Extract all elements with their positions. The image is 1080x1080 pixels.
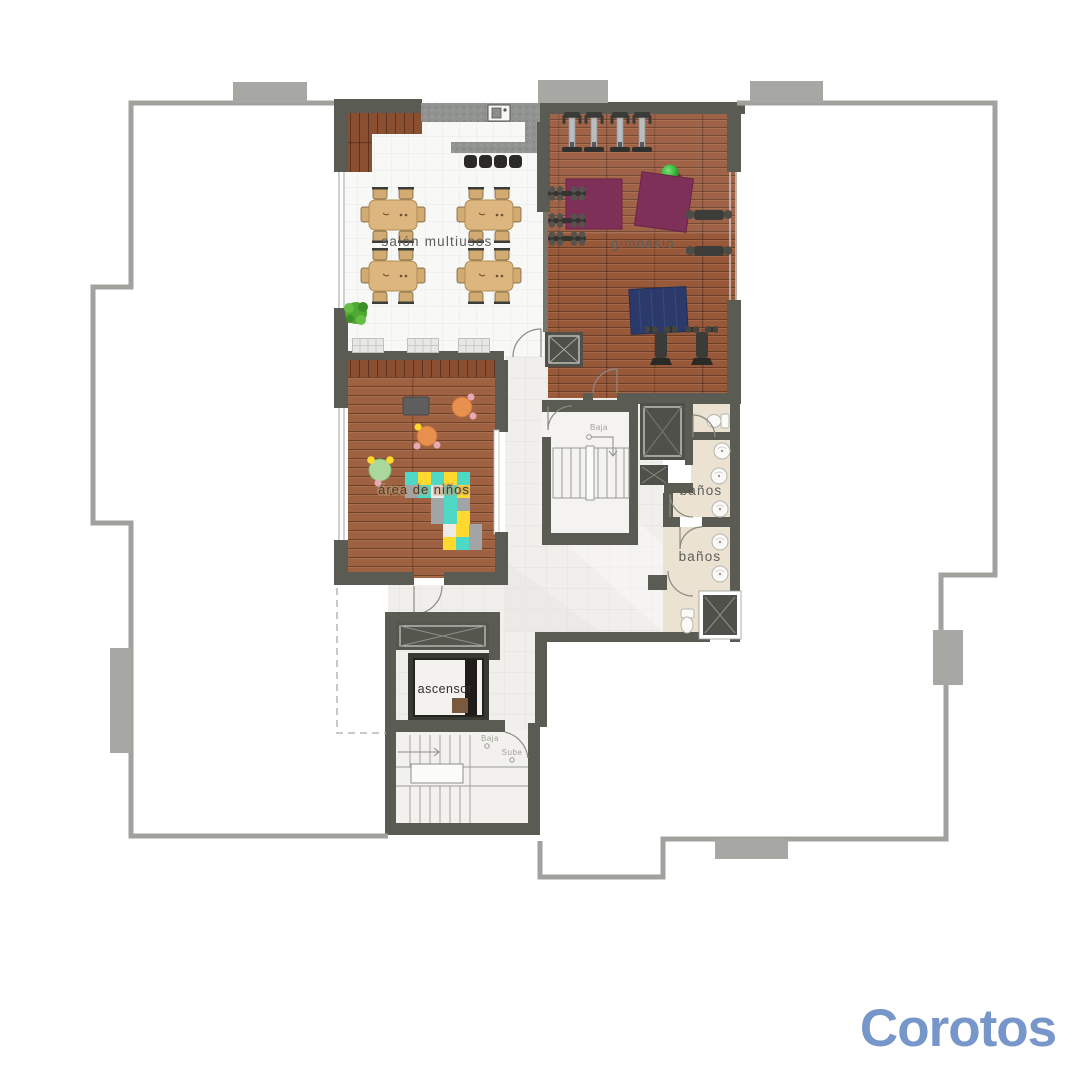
bottom-stair-baja-label: Baja <box>481 734 499 743</box>
salon-plant <box>344 302 368 325</box>
terrace-dashed-boundary <box>337 588 386 733</box>
central-stair: Baja <box>542 400 638 545</box>
shaft-bottom-right <box>699 591 741 639</box>
shaft-salon-gym <box>545 332 583 367</box>
gym-label: gimnasio <box>611 236 675 251</box>
banos-lower-label: baños <box>679 549 722 564</box>
kids-label: área de niños <box>378 482 470 497</box>
salon-label: salón multiusos <box>381 234 492 249</box>
central-stair-baja-label: Baja <box>590 423 608 432</box>
balcony-wood-strip <box>334 351 504 377</box>
shaft-small <box>640 465 668 485</box>
floor-plan-image: salón multiusos <box>0 0 1080 1080</box>
bottom-stair-sube-label: Sube <box>502 748 523 757</box>
kids-tv-table <box>403 397 429 415</box>
corotos-logo: Corotos <box>860 999 1056 1058</box>
salon-benches <box>353 339 490 353</box>
gym-mat-blue <box>629 287 688 335</box>
shaft-big <box>640 403 685 460</box>
ascensor-label: ascensor <box>418 682 473 696</box>
floor-plan-svg: salón multiusos <box>0 0 1080 1080</box>
banos-upper-label: baños <box>680 483 723 498</box>
